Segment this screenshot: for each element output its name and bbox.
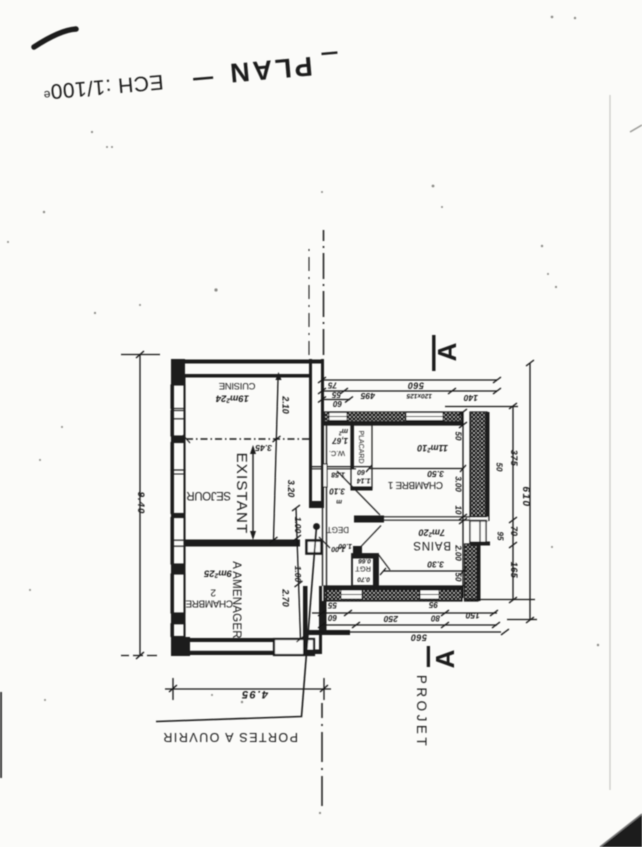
svg-text:2.10: 2.10: [281, 395, 291, 414]
svg-text:60: 60: [357, 468, 365, 475]
svg-text:3.45: 3.45: [255, 443, 272, 453]
svg-text:9.40: 9.40: [135, 492, 146, 515]
svg-text:PLACARD: PLACARD: [357, 430, 364, 463]
svg-text:EXISTANT: EXISTANT: [233, 453, 250, 535]
svg-text:0.70: 0.70: [357, 576, 370, 583]
svg-text:95: 95: [429, 600, 438, 609]
svg-text:250: 250: [384, 614, 399, 624]
svg-text:7m220: 7m220: [419, 528, 445, 538]
svg-text:CHAMBRE 1: CHAMBRE 1: [387, 479, 443, 490]
svg-text:375: 375: [509, 450, 519, 467]
svg-text:A: A: [430, 649, 460, 668]
svg-text:W.C.: W.C.: [329, 449, 345, 458]
svg-text:SEJOUR: SEJOUR: [187, 489, 231, 501]
svg-text:140: 140: [464, 393, 478, 403]
svg-text:1.00: 1.00: [331, 545, 345, 552]
svg-text:2.70: 2.70: [281, 588, 291, 607]
svg-text:560: 560: [410, 633, 427, 643]
svg-text:ECH :1/100e: ECH :1/100e: [42, 70, 164, 103]
svg-text:10: 10: [454, 506, 463, 515]
svg-text:RGT: RGT: [355, 565, 371, 574]
svg-text:1.14: 1.14: [357, 477, 371, 484]
svg-text:m2: m2: [339, 427, 348, 436]
svg-text:BAINS: BAINS: [412, 539, 451, 551]
svg-text:150: 150: [466, 611, 480, 621]
svg-text:11m210: 11m210: [417, 443, 448, 453]
svg-text:3.30: 3.30: [427, 560, 444, 570]
svg-text:4.95: 4.95: [241, 688, 269, 700]
svg-text:610: 610: [520, 486, 531, 507]
svg-text:PROJET: PROJET: [414, 675, 429, 749]
svg-text:80: 80: [431, 614, 440, 623]
svg-text:3.00: 3.00: [454, 476, 463, 492]
svg-text:560: 560: [407, 381, 424, 391]
svg-text:70: 70: [509, 526, 519, 536]
svg-text:3.20: 3.20: [286, 480, 296, 498]
svg-text:A: A: [432, 342, 462, 361]
svg-text:DEGT: DEGT: [327, 525, 349, 534]
svg-text:50: 50: [495, 463, 504, 472]
svg-text:m: m: [336, 498, 342, 505]
svg-text:55: 55: [332, 390, 341, 399]
svg-text:60: 60: [333, 399, 342, 408]
svg-text:3.50: 3.50: [427, 469, 444, 479]
svg-text:1,67: 1,67: [332, 436, 348, 445]
svg-text:60: 60: [328, 613, 337, 622]
svg-text:CHAMBRE: CHAMBRE: [185, 598, 233, 609]
svg-text:PLAN: PLAN: [226, 51, 314, 88]
svg-text:CUISINE: CUISINE: [219, 380, 255, 391]
svg-text:9m225: 9m225: [203, 568, 232, 579]
svg-text:0.66: 0.66: [358, 557, 371, 564]
svg-text:55: 55: [328, 601, 337, 610]
svg-text:495: 495: [361, 391, 376, 401]
svg-text:PORTES A OUVRIR: PORTES A OUVRIR: [162, 730, 298, 744]
svg-text:50: 50: [454, 573, 463, 582]
svg-text:50: 50: [454, 432, 463, 441]
svg-text:165: 165: [509, 562, 519, 579]
svg-text:1.00: 1.00: [293, 517, 303, 534]
svg-text:1.00: 1.00: [293, 566, 303, 583]
svg-text:2: 2: [210, 587, 216, 598]
svg-text:75: 75: [328, 381, 337, 390]
svg-text:19m224: 19m224: [215, 393, 249, 404]
svg-text:2.00: 2.00: [454, 544, 463, 561]
svg-text:3.10: 3.10: [329, 487, 345, 496]
svg-text:95: 95: [496, 532, 505, 541]
svg-text:120x125: 120x125: [406, 392, 432, 399]
